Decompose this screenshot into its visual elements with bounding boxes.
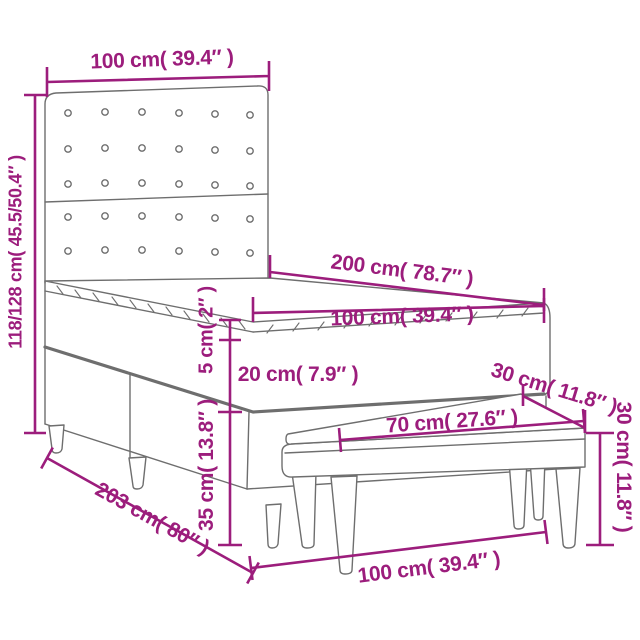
headboard: [45, 86, 268, 283]
diagram-canvas: 100 cm( 39.4″ ) 118/128 cm( 45.5/50.4″ )…: [0, 0, 640, 640]
base-corner-edge: [247, 412, 249, 489]
dim-line-height-stack: [218, 320, 242, 545]
headboard-outline: [45, 86, 268, 283]
dim-line-total-height: [24, 95, 46, 433]
bed-leg-front-mid: [129, 457, 146, 489]
dim-label-total-height: 118/128 cm( 45.5/50.4″ ): [6, 155, 27, 349]
dim-label-topper-height: 5 cm( 2″ ): [196, 286, 219, 374]
bench-leg-front-right: [556, 468, 580, 548]
dim-line-bench-height: [586, 433, 614, 545]
dim-label-headboard-width: 100 cm( 39.4″ ): [90, 46, 234, 75]
bench-leg-front-left: [292, 472, 316, 548]
dim-label-mattress-width: 100 cm( 39.4″ ): [330, 303, 474, 332]
dim-label-mattress-height: 20 cm( 7.9″ ): [238, 363, 359, 387]
bench-leg-front-mid: [331, 476, 357, 574]
dim-label-bench-height: 30 cm( 11.8″ ): [611, 402, 635, 533]
dim-label-base-height: 35 cm( 13.8″ ): [195, 399, 219, 531]
bench-leg-rear-left: [509, 460, 527, 529]
line-art-svg: [0, 0, 640, 640]
bed-leg-foot: [266, 504, 281, 548]
